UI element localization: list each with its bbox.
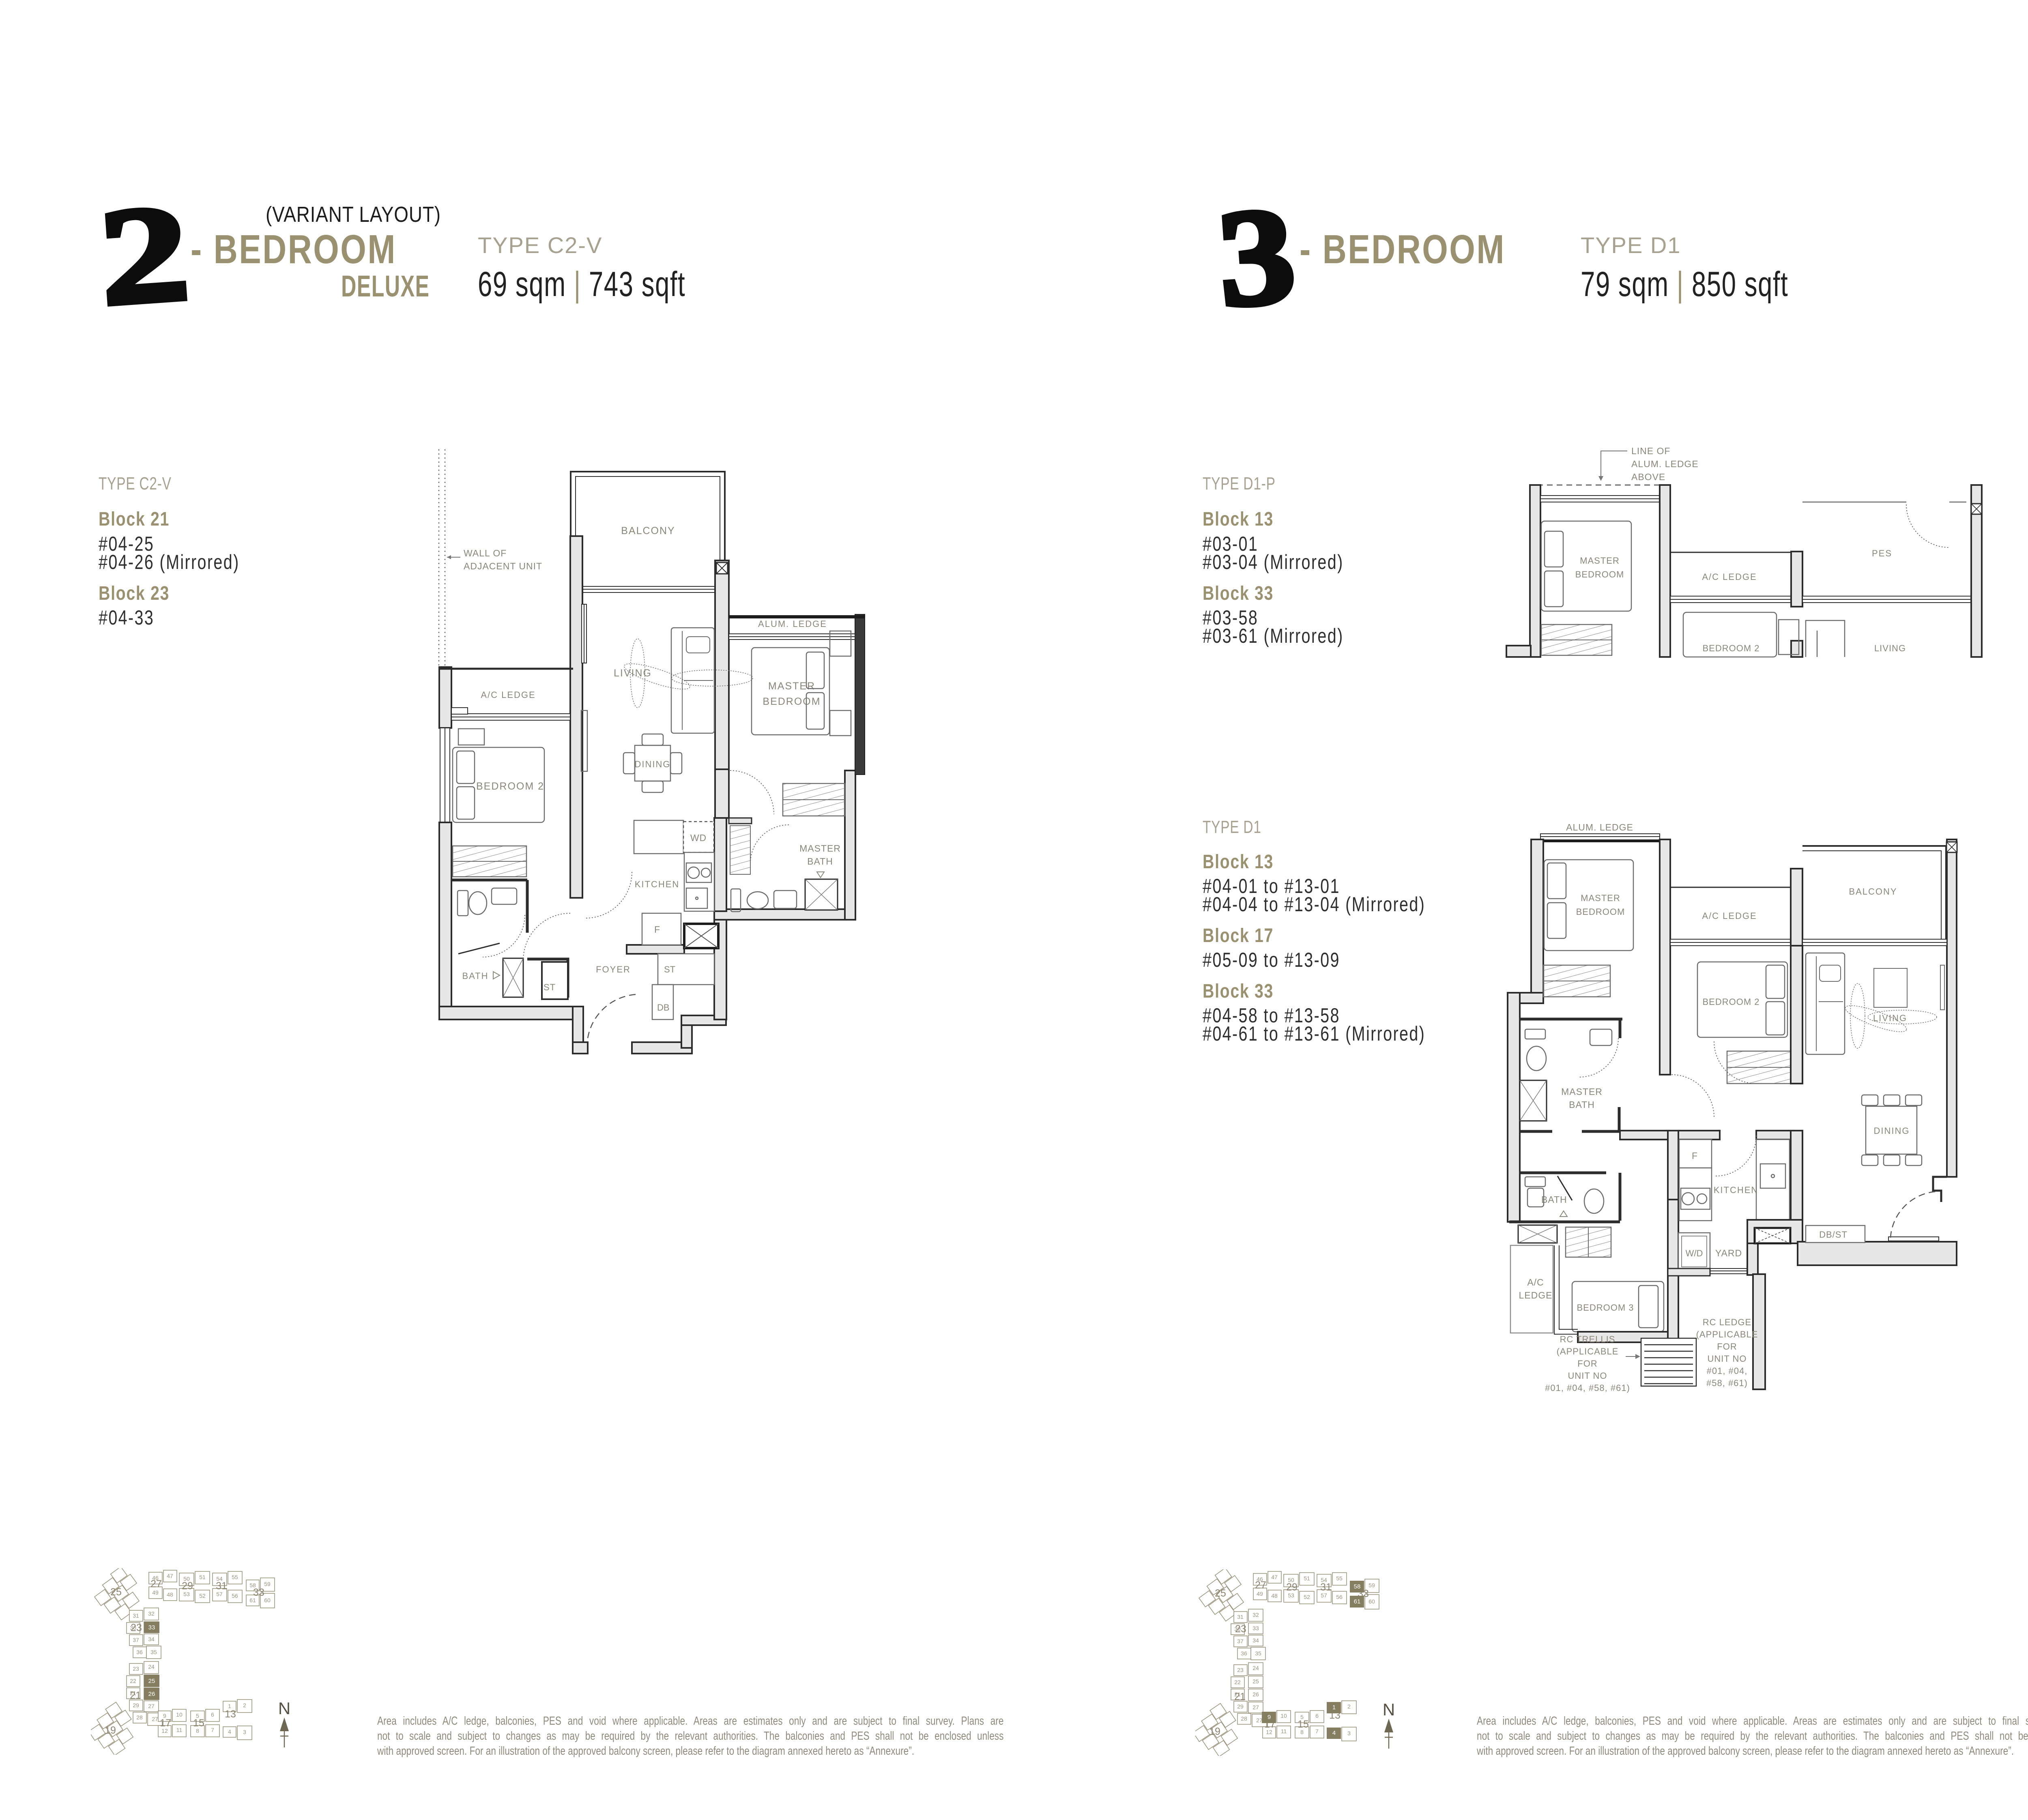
svg-text:DB: DB [657,1002,670,1013]
svg-text:F: F [1692,1150,1697,1161]
svg-text:MASTER: MASTER [768,680,815,692]
svg-text:DINING: DINING [1874,1126,1910,1136]
svg-text:LIVING: LIVING [614,667,652,679]
svg-text:MASTER: MASTER [1580,556,1620,566]
svg-text:PES: PES [1872,548,1892,558]
svg-text:9: 9 [1267,1714,1271,1721]
svg-text:ALUM. LEDGE: ALUM. LEDGE [758,619,827,629]
svg-text:RC TRELLIS: RC TRELLIS [1560,1334,1616,1344]
svg-text:BALCONY: BALCONY [621,525,675,537]
svg-text:LIVING: LIVING [1874,643,1906,653]
svg-text:KITCHEN: KITCHEN [635,879,680,889]
svg-text:WD: WD [690,833,707,843]
svg-text:LEDGE: LEDGE [1519,1290,1553,1301]
svg-text:LIVING: LIVING [1873,1013,1907,1023]
svg-text:#01, #04, #58, #61): #01, #04, #58, #61) [1545,1383,1630,1393]
svg-text:FOR: FOR [1577,1359,1597,1369]
svg-text:DINING: DINING [635,759,671,769]
svg-text:61: 61 [1354,1598,1361,1605]
svg-text:DB/ST: DB/ST [1819,1230,1848,1240]
svg-text:BEDROOM 2: BEDROOM 2 [1702,643,1759,653]
svg-text:KITCHEN: KITCHEN [1714,1185,1759,1195]
svg-text:BATH: BATH [462,971,488,981]
svg-text:A/C LEDGE: A/C LEDGE [1702,572,1757,582]
svg-text:WALL OF: WALL OF [464,548,507,558]
svg-text:25: 25 [148,1678,155,1685]
svg-text:BATH: BATH [807,856,833,867]
svg-text:#58, #61): #58, #61) [1706,1378,1748,1388]
svg-text:BEDROOM 2: BEDROOM 2 [1702,997,1759,1007]
svg-text:ABOVE: ABOVE [1631,472,1665,482]
svg-text:W/D: W/D [1686,1248,1703,1258]
svg-text:F: F [654,924,660,935]
svg-text:A/C: A/C [1527,1277,1544,1288]
svg-text:UNIT NO: UNIT NO [1568,1371,1607,1381]
svg-text:ALUM. LEDGE: ALUM. LEDGE [1631,459,1699,469]
svg-text:MASTER: MASTER [1581,893,1620,903]
svg-text:BEDROOM 3: BEDROOM 3 [1577,1303,1634,1313]
svg-text:YARD: YARD [1715,1248,1742,1258]
svg-text:BEDROOM: BEDROOM [1575,569,1624,579]
svg-text:ST: ST [544,982,556,992]
svg-text:BEDROOM 2: BEDROOM 2 [476,781,544,792]
svg-text:(APPLICABLE: (APPLICABLE [1696,1329,1758,1339]
svg-text:BEDROOM: BEDROOM [1576,907,1625,917]
svg-text:A/C LEDGE: A/C LEDGE [481,690,535,700]
svg-text:MASTER: MASTER [799,843,841,854]
svg-text:A/C LEDGE: A/C LEDGE [1702,911,1757,921]
svg-text:1: 1 [1332,1704,1336,1711]
svg-text:ADJACENT UNIT: ADJACENT UNIT [464,561,542,571]
svg-text:FOR: FOR [1717,1341,1737,1352]
svg-text:58: 58 [1354,1583,1361,1590]
svg-text:26: 26 [148,1691,155,1698]
svg-text:FOYER: FOYER [596,964,631,974]
svg-text:BATH: BATH [1541,1194,1567,1205]
svg-text:LINE OF: LINE OF [1631,446,1670,456]
svg-text:ST: ST [664,964,675,974]
svg-text:4: 4 [1332,1730,1336,1736]
svg-text:BALCONY: BALCONY [1849,886,1897,897]
svg-text:BATH: BATH [1569,1099,1595,1110]
svg-text:BEDROOM: BEDROOM [763,696,821,707]
svg-text:ALUM. LEDGE: ALUM. LEDGE [1566,822,1633,833]
svg-text:MASTER: MASTER [1561,1086,1603,1097]
svg-text:33: 33 [148,1624,155,1631]
svg-text:UNIT NO: UNIT NO [1707,1354,1747,1364]
svg-text:(APPLICABLE: (APPLICABLE [1557,1346,1619,1356]
svg-text:#01, #04,: #01, #04, [1707,1366,1748,1376]
svg-text:RC LEDGE: RC LEDGE [1703,1317,1751,1327]
